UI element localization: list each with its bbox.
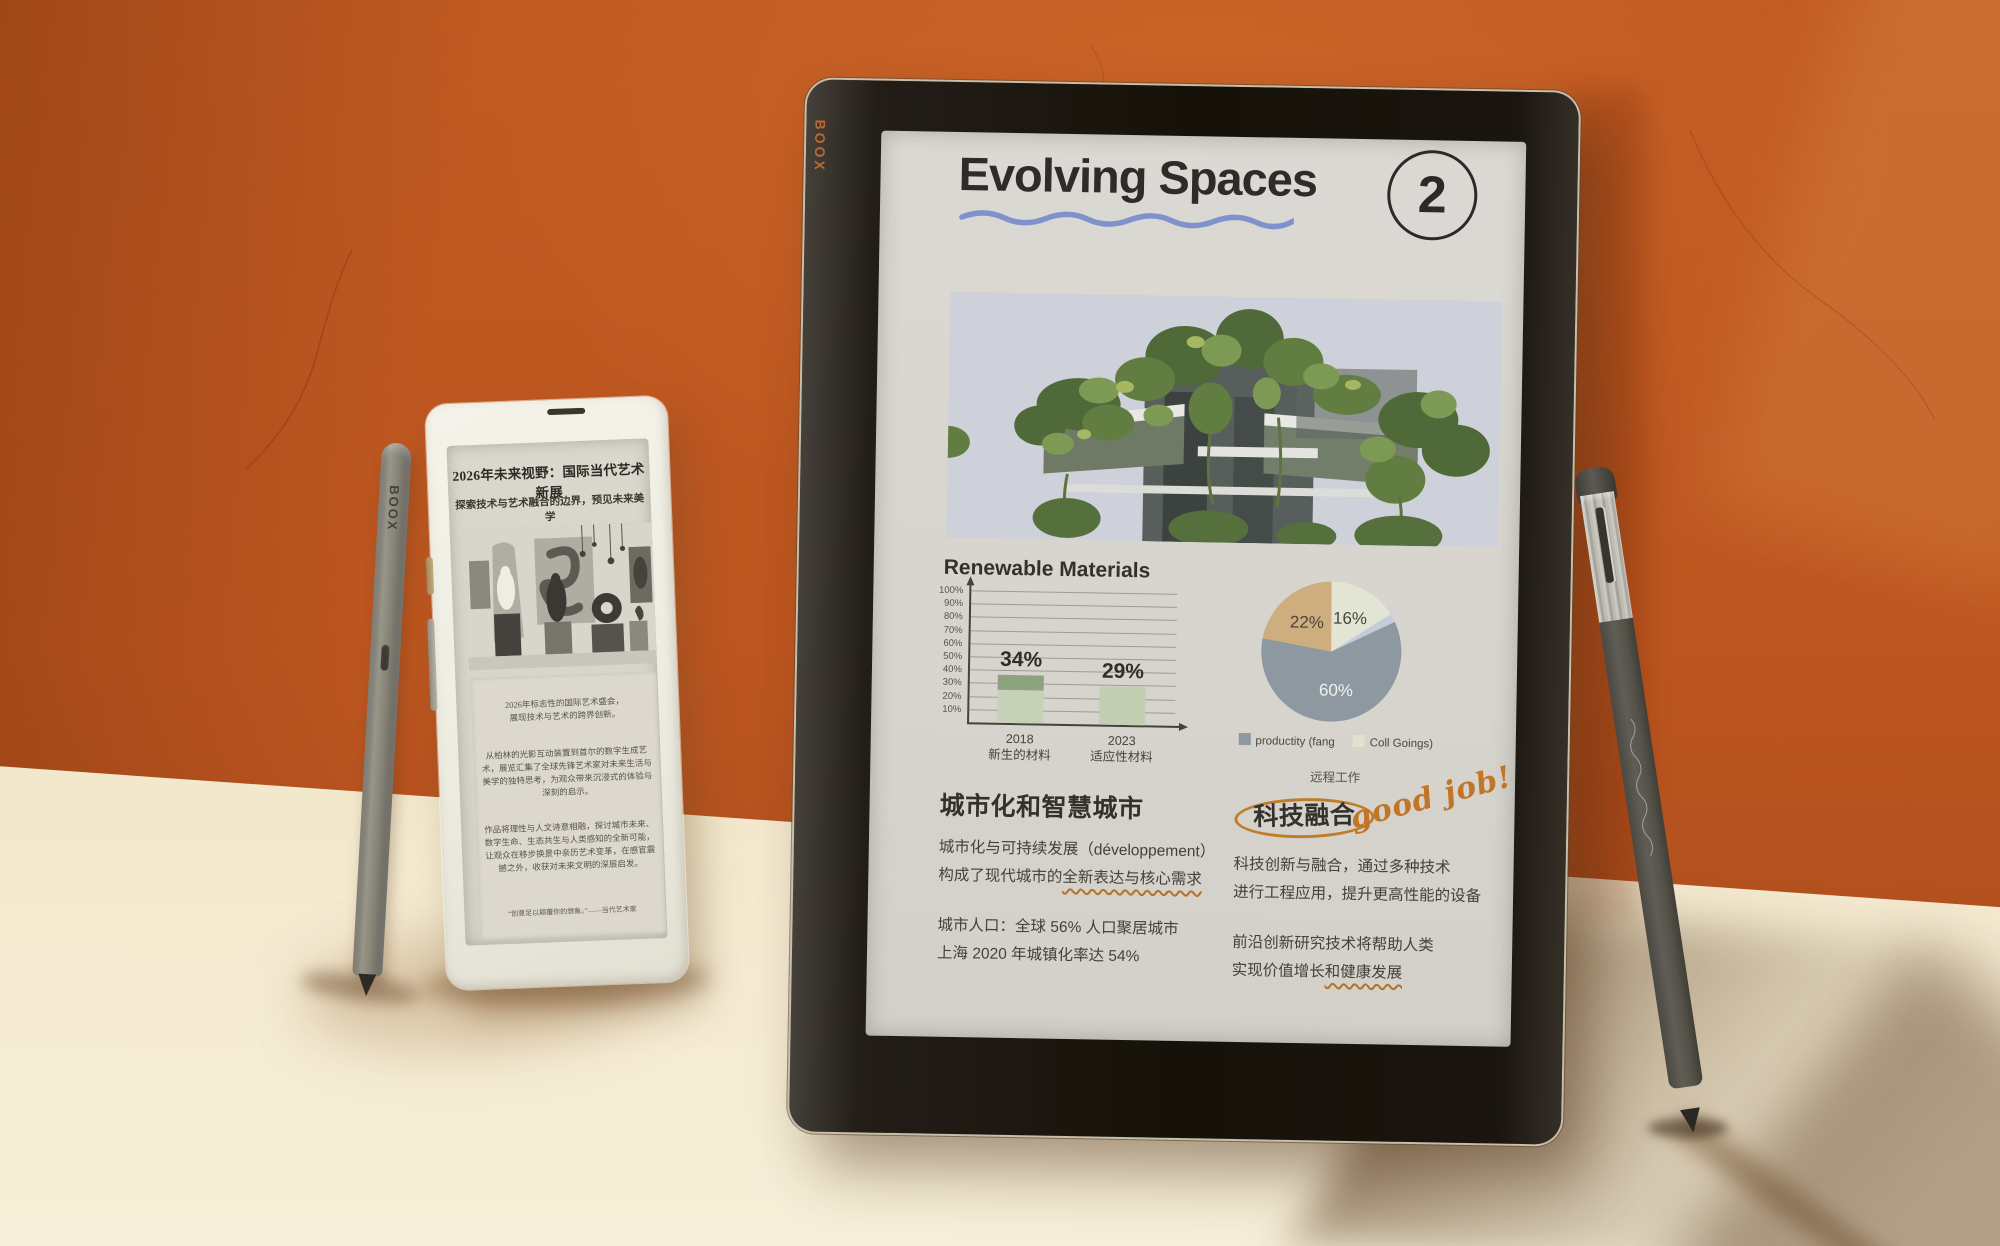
urban-line-2: 构成了现代城市的全新表达与核心需求 bbox=[938, 862, 1228, 895]
ereader-screen: 2026年未来视野：国际当代艺术新展 探索技术与艺术融合的边界，预见未来美学 bbox=[446, 438, 667, 945]
urban-stat-2: 上海 2020 年城镇化率达 54% bbox=[937, 940, 1227, 973]
urban-section-heading: 城市化和智慧城市 bbox=[939, 792, 1229, 825]
pie-slice-label: 22% bbox=[1290, 613, 1324, 633]
reader-speaker-grille bbox=[547, 408, 585, 415]
urban-section: 城市化和智慧城市 城市化与可持续发展（développement） 构成了现代城… bbox=[937, 792, 1230, 973]
legend-swatch bbox=[1353, 735, 1365, 747]
article-paragraph-3: 作品将理性与人文诗意相融，探讨城市未来、数字生命、生态共生与人类感知的全新可能，… bbox=[484, 817, 656, 875]
y-tick-label: 10% bbox=[931, 703, 961, 715]
y-tick-label: 30% bbox=[932, 677, 962, 689]
tech-p1-line2: 进行工程应用，提升更高性能的设备 bbox=[1233, 879, 1523, 912]
y-tick-label: 90% bbox=[933, 598, 963, 610]
y-tick-label: 50% bbox=[932, 651, 962, 663]
legend-item: productity (fang bbox=[1238, 733, 1334, 749]
tech-p2-line2: 实现价值增长和健康发展 bbox=[1231, 957, 1521, 990]
pie-chart: 22%16%60% bbox=[1259, 579, 1403, 723]
article-paragraph-2: 从柏林的光影互动装置到首尔的数字生成艺术，展览汇集了全球先锋艺术家对未来生活与美… bbox=[481, 743, 653, 801]
article-quote: “创意足以颠覆你的想象。”——当代艺术家 bbox=[487, 903, 657, 920]
bar-chart-y-axis bbox=[967, 584, 971, 723]
legend-swatch bbox=[1238, 733, 1250, 745]
pie-chart-block: 22%16%60% productity (fangColl Goings) 远… bbox=[1214, 577, 1464, 581]
y-axis-arrow bbox=[966, 576, 974, 585]
stylus-left-button bbox=[380, 644, 389, 670]
gridline bbox=[969, 590, 1177, 595]
note-title: Evolving Spaces bbox=[958, 146, 1317, 207]
eink-tablet: BOOX Evolving Spaces 2 bbox=[789, 79, 1579, 1144]
page-number-badge: 2 bbox=[1387, 149, 1479, 241]
product-photo-scene: 2026年未来视野：国际当代艺术新展 探索技术与艺术融合的边界，预见未来美学 bbox=[0, 0, 2000, 1246]
bar-value-label: 34% bbox=[986, 648, 1056, 673]
y-tick-label: 100% bbox=[933, 585, 963, 597]
y-tick-label: 20% bbox=[931, 690, 961, 702]
gridline bbox=[969, 603, 1177, 608]
bar-category-label: 2018 新生的材料 bbox=[975, 730, 1064, 764]
article-subtitle: 探索技术与艺术融合的边界，预见未来美学 bbox=[452, 490, 647, 527]
y-tick-label: 80% bbox=[933, 611, 963, 623]
reader-side-button-upper bbox=[426, 557, 434, 595]
bar-category-label: 2023 适应性材料 bbox=[1077, 732, 1166, 766]
bar-segment bbox=[998, 675, 1044, 690]
bar-value-label: 29% bbox=[1088, 659, 1158, 684]
bar-chart-title: Renewable Materials bbox=[944, 556, 1151, 584]
y-tick-label: 70% bbox=[933, 624, 963, 636]
gallery-illustration bbox=[464, 522, 657, 670]
title-underline-scribble bbox=[958, 208, 1294, 232]
green-building-photo bbox=[946, 292, 1502, 548]
article-paragraph-1: 2026年标志性的国际艺术盛会， 展现技术与艺术的跨界创新。 bbox=[479, 693, 650, 726]
gridline bbox=[969, 630, 1177, 635]
stylus-right-tip bbox=[1680, 1107, 1703, 1134]
bar-segment bbox=[1099, 686, 1146, 725]
legend-item: Coll Goings) bbox=[1353, 735, 1434, 750]
gridline bbox=[968, 643, 1176, 648]
pie-slice-label: 60% bbox=[1319, 680, 1353, 700]
pie-legend: productity (fangColl Goings) bbox=[1211, 732, 1461, 750]
y-tick-label: 40% bbox=[932, 664, 962, 676]
tablet-screen: Evolving Spaces 2 bbox=[866, 131, 1527, 1047]
y-tick-label: 60% bbox=[932, 637, 962, 649]
bar-chart-x-axis bbox=[967, 722, 1181, 727]
pie-slice-label: 16% bbox=[1333, 609, 1367, 629]
urban-wavy-underlined-text: 全新表达与核心需求 bbox=[1062, 869, 1202, 888]
article-panel: 2026年标志性的国际艺术盛会， 展现技术与艺术的跨界创新。 从柏林的光影互动装… bbox=[470, 671, 666, 940]
bar-segment bbox=[997, 690, 1044, 724]
page-number: 2 bbox=[1417, 165, 1447, 225]
boox-logo: BOOX bbox=[812, 119, 828, 143]
small-ereader: 2026年未来视野：国际当代艺术新展 探索技术与艺术融合的边界，预见未来美学 bbox=[425, 396, 689, 991]
stylus-brand-label: BOOX bbox=[385, 485, 403, 532]
x-axis-arrow bbox=[1179, 722, 1188, 730]
stylus-left-tip bbox=[357, 974, 376, 997]
bar-chart: 100%90%80%70%60%50%40%30%20%10%34%2018 新… bbox=[930, 582, 1189, 786]
tech-wavy-underlined-text: 和健康发展 bbox=[1325, 964, 1403, 982]
gridline bbox=[969, 617, 1177, 622]
